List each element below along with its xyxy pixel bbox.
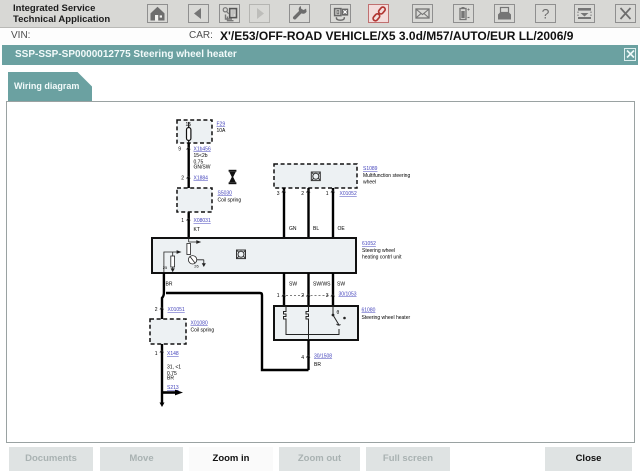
svg-text:S5030: S5030 xyxy=(218,191,233,197)
svg-text:1: 1 xyxy=(155,351,158,357)
svg-text:S213: S213 xyxy=(167,385,179,391)
svg-text:30/1053: 30/1053 xyxy=(339,292,357,298)
svg-text:Steering wheel: Steering wheel xyxy=(362,248,395,254)
svg-text:4: 4 xyxy=(301,355,304,361)
svg-text:31, <1: 31, <1 xyxy=(167,365,181,371)
svg-text:1: 1 xyxy=(326,191,329,197)
svg-text:1: 1 xyxy=(277,293,280,299)
svg-text:61080: 61080 xyxy=(362,308,376,314)
svg-text:X08031: X08031 xyxy=(194,218,211,224)
svg-text:X1b456: X1b456 xyxy=(194,147,211,153)
svg-text:3: 3 xyxy=(326,293,329,299)
svg-text:X01052: X01052 xyxy=(340,191,357,197)
svg-text:BL: BL xyxy=(313,226,319,232)
svg-text:KT: KT xyxy=(194,227,200,233)
svg-text:3: 3 xyxy=(277,191,280,197)
svg-text:X148: X148 xyxy=(167,351,179,357)
svg-text:S1089: S1089 xyxy=(363,166,378,172)
svg-text:θ: θ xyxy=(337,310,340,316)
svg-text:Steering wheel heater: Steering wheel heater xyxy=(362,315,411,321)
svg-text:10A: 10A xyxy=(217,128,227,134)
svg-text:SW/WS: SW/WS xyxy=(313,282,331,288)
svg-text:heating contrl unit: heating contrl unit xyxy=(362,255,402,261)
svg-text:Multifunction steering: Multifunction steering xyxy=(363,173,410,179)
svg-text:2: 2 xyxy=(155,307,158,313)
svg-text:GN: GN xyxy=(289,226,297,232)
svg-text:BR: BR xyxy=(166,282,173,288)
svg-text:26: 26 xyxy=(194,264,199,269)
svg-text:SW: SW xyxy=(289,282,297,288)
svg-text:GN/SW: GN/SW xyxy=(194,165,211,171)
svg-text:SW: SW xyxy=(337,282,345,288)
svg-text:1: 1 xyxy=(181,218,184,224)
svg-text:X01051: X01051 xyxy=(168,307,185,313)
svg-text:15<2b: 15<2b xyxy=(194,153,208,159)
svg-text:Coil spring: Coil spring xyxy=(191,328,215,334)
svg-text:Coil spring: Coil spring xyxy=(218,198,242,204)
svg-text:BR: BR xyxy=(167,376,174,382)
svg-text:F29: F29 xyxy=(217,122,226,128)
svg-text:30/1508: 30/1508 xyxy=(314,354,332,360)
svg-text:OE: OE xyxy=(338,226,346,232)
svg-text:61052: 61052 xyxy=(362,241,376,247)
svg-text:2: 2 xyxy=(181,176,184,182)
svg-text:X01080: X01080 xyxy=(191,321,208,327)
svg-text:wheel: wheel xyxy=(363,180,376,186)
svg-text:25: 25 xyxy=(163,265,168,270)
svg-text:9: 9 xyxy=(178,147,181,153)
svg-text:BR: BR xyxy=(314,362,321,368)
svg-text:2: 2 xyxy=(301,191,304,197)
svg-text:2: 2 xyxy=(301,293,304,299)
svg-text:X1884: X1884 xyxy=(194,176,209,182)
